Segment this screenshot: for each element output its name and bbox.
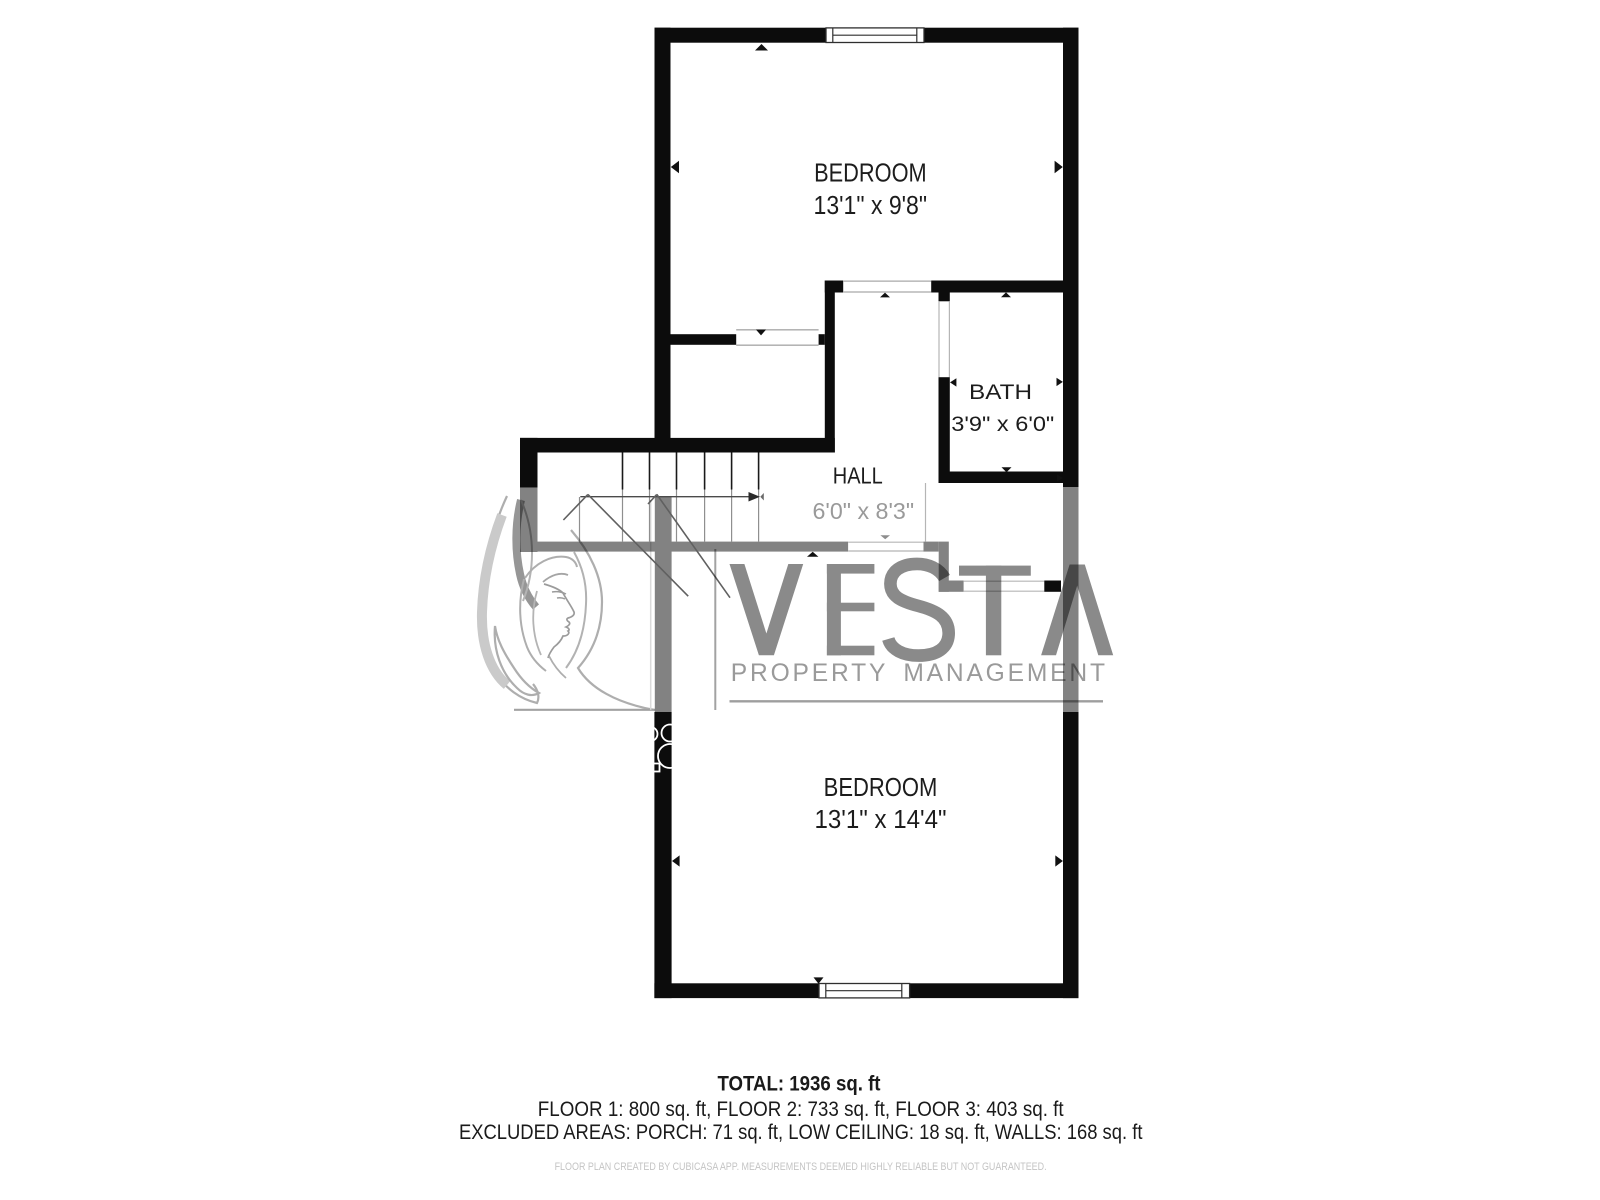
- svg-text:6'0" x 8'3": 6'0" x 8'3": [813, 498, 915, 524]
- svg-text:TOTAL: 1936 sq. ft: TOTAL: 1936 sq. ft: [718, 1073, 881, 1096]
- svg-text:BATH: BATH: [969, 381, 1032, 404]
- svg-text:HALL: HALL: [833, 462, 883, 488]
- svg-text:BEDROOM: BEDROOM: [824, 774, 938, 802]
- svg-text:BEDROOM: BEDROOM: [814, 159, 927, 187]
- svg-text:13'1" x 14'4": 13'1" x 14'4": [815, 806, 947, 834]
- svg-text:13'1" x 9'8": 13'1" x 9'8": [814, 192, 928, 220]
- svg-text:EXCLUDED AREAS: PORCH: 71 sq.: EXCLUDED AREAS: PORCH: 71 sq. ft, LOW CE…: [459, 1121, 1143, 1144]
- svg-text:3'9" x 6'0": 3'9" x 6'0": [951, 412, 1054, 436]
- svg-text:FLOOR 1: 800 sq. ft, FLOOR 2:: FLOOR 1: 800 sq. ft, FLOOR 2: 733 sq. ft…: [538, 1098, 1064, 1121]
- svg-text:FLOOR PLAN CREATED BY CUBICASA: FLOOR PLAN CREATED BY CUBICASA APP. MEAS…: [555, 1161, 1047, 1173]
